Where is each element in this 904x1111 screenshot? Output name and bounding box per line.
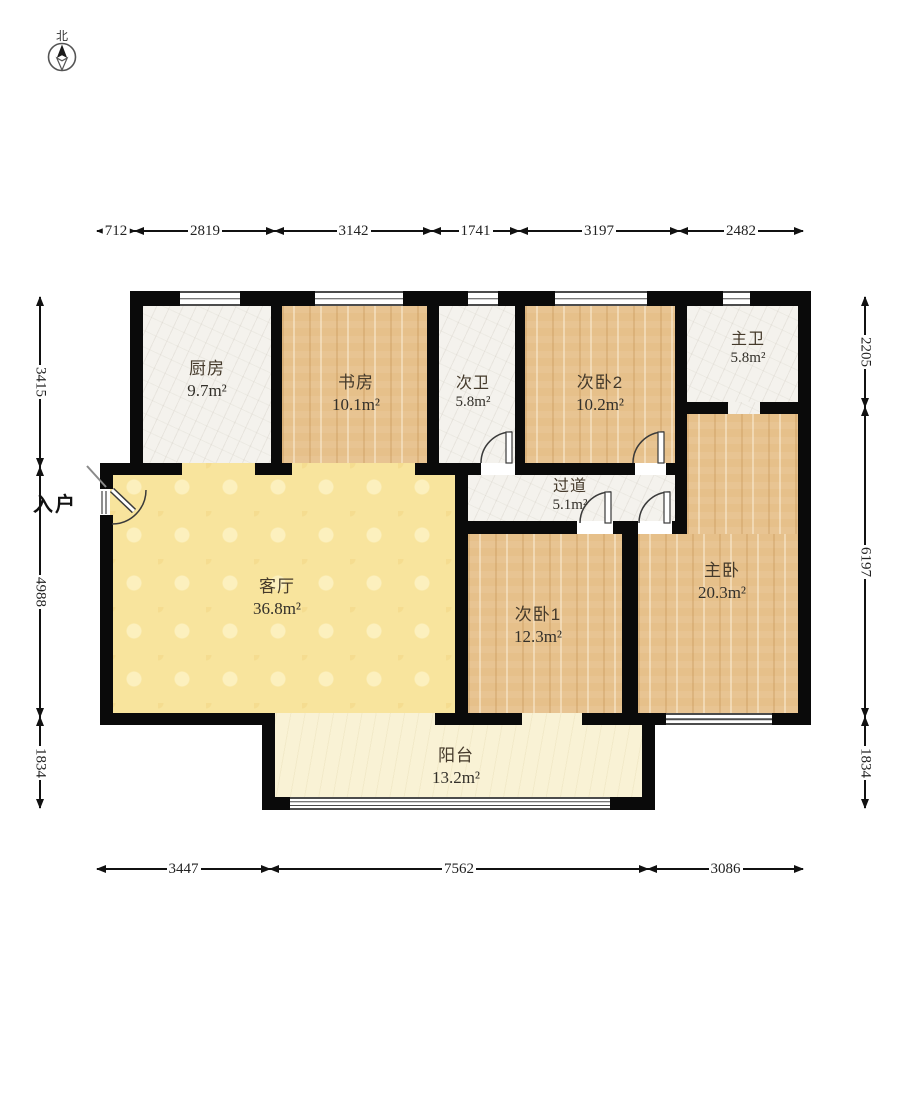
room-label-master-bath: 主卫 5.8m² bbox=[693, 330, 803, 367]
dim-value: 7562 bbox=[442, 861, 476, 878]
room-label-study: 书房 10.1m² bbox=[301, 372, 411, 415]
door-leaf bbox=[506, 432, 512, 463]
dim-value: 3142 bbox=[337, 223, 371, 240]
dimension-chain-left: 3415 4988 1834 bbox=[33, 297, 47, 808]
dim-value: 2205 bbox=[857, 335, 874, 369]
dim-value: 2819 bbox=[188, 223, 222, 240]
dim-value: 2482 bbox=[724, 223, 758, 240]
door-swings-overlay bbox=[0, 0, 904, 1111]
room-label-master-bedroom: 主卧 20.3m² bbox=[667, 560, 777, 603]
dim-value: 3197 bbox=[582, 223, 616, 240]
dim-value: 1834 bbox=[32, 746, 49, 780]
entrance-outer-leaf bbox=[87, 466, 106, 487]
floor-plan: 北 bbox=[0, 0, 904, 1111]
dimension-chain-bottom: 3447 7562 3086 bbox=[97, 862, 803, 876]
dimension-chain-top: 712 2819 3142 1741 3197 2482 bbox=[97, 224, 803, 238]
room-label-bedroom2: 次卧2 10.2m² bbox=[545, 372, 655, 415]
entrance-door-leaf bbox=[112, 490, 134, 511]
room-label-bedroom1: 次卧1 12.3m² bbox=[483, 604, 593, 647]
dim-value: 6197 bbox=[857, 545, 874, 579]
dimension-chain-right: 2205 6197 1834 bbox=[858, 297, 872, 808]
room-label-kitchen: 厨房 9.7m² bbox=[152, 358, 262, 401]
dim-value: 1834 bbox=[857, 746, 874, 780]
door-leaf bbox=[658, 432, 664, 463]
dim-value: 3086 bbox=[709, 861, 743, 878]
dim-value: 3415 bbox=[32, 365, 49, 399]
dim-value: 4988 bbox=[32, 575, 49, 609]
entrance-door-frame bbox=[102, 491, 106, 514]
dim-value: 3447 bbox=[167, 861, 201, 878]
room-label-balcony: 阳台 13.2m² bbox=[401, 745, 511, 788]
dim-value: 712 bbox=[103, 223, 130, 240]
door-leaf bbox=[664, 492, 670, 523]
room-label-bath2: 次卫 5.8m² bbox=[418, 374, 528, 411]
room-label-hallway: 过道 5.1m² bbox=[515, 477, 625, 514]
room-label-living: 客厅 36.8m² bbox=[222, 576, 332, 619]
dim-value: 1741 bbox=[459, 223, 493, 240]
